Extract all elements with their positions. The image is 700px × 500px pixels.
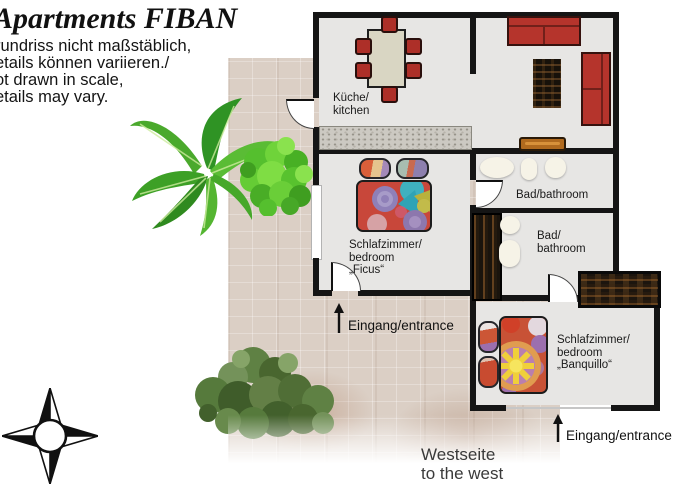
dark-rug bbox=[533, 59, 561, 108]
bath-toilet bbox=[521, 158, 537, 180]
pillow bbox=[396, 158, 429, 179]
window bbox=[311, 185, 322, 260]
wall bbox=[313, 12, 319, 98]
arrow-up-icon bbox=[333, 303, 345, 335]
disclaimer-line-1: rundriss nicht maßstäblich, bbox=[0, 38, 191, 55]
bathroom-top-label: Bad/bathroom bbox=[516, 189, 588, 202]
pillow bbox=[478, 356, 499, 388]
single-bed-banquillo bbox=[499, 316, 548, 394]
bedroom-banquillo-label: Schlafzimmer/ bedroom „Banquillo“ bbox=[557, 334, 630, 372]
wall bbox=[358, 290, 476, 296]
dining-chair bbox=[381, 86, 398, 103]
bath-bidet bbox=[545, 157, 566, 178]
bedroom-ficus-label: Schlafzimmer/ bedroom „Ficus“ bbox=[349, 239, 422, 277]
dining-chair bbox=[405, 62, 422, 79]
sofa-2 bbox=[581, 52, 611, 126]
wall-kitchen-divider bbox=[470, 12, 476, 74]
floor-plan-page: Küche/ kitchen Bad/bathroom Bad/ bathroo… bbox=[0, 0, 700, 500]
disclaimer-line-2: etails können variieren./ bbox=[0, 55, 169, 72]
wall bbox=[470, 296, 476, 411]
pillow bbox=[359, 158, 391, 179]
dining-chair bbox=[405, 38, 422, 55]
double-bed-ficus bbox=[356, 180, 432, 232]
compass-rose-icon bbox=[2, 388, 98, 484]
entrance-threshold bbox=[506, 407, 611, 409]
bath-sink bbox=[500, 216, 520, 234]
bathroom-bottom-label: Bad/ bathroom bbox=[537, 230, 586, 255]
wall bbox=[470, 405, 506, 411]
sofa bbox=[507, 16, 581, 46]
bath-toilet bbox=[499, 240, 520, 267]
pillow bbox=[478, 321, 499, 353]
green-bush bbox=[238, 132, 316, 216]
dining-table bbox=[367, 29, 406, 88]
dining-chair bbox=[381, 16, 398, 33]
wall bbox=[313, 290, 332, 296]
disclaimer-line-4: etails may vary. bbox=[0, 89, 108, 106]
kitchen-counter bbox=[319, 126, 472, 150]
wardrobe bbox=[578, 271, 661, 308]
disclaimer-line-3: ot drawn in scale, bbox=[0, 72, 123, 89]
west-side-label: Westseite to the west bbox=[421, 445, 503, 483]
page-title: Apartments FIBAN bbox=[0, 2, 237, 36]
patio-fade bbox=[228, 415, 560, 470]
wall bbox=[470, 154, 476, 180]
kitchen-label: Küche/ kitchen bbox=[333, 92, 369, 117]
wall bbox=[611, 405, 660, 411]
entrance-1-label: Eingang/entrance bbox=[348, 318, 454, 333]
wall bbox=[613, 12, 619, 274]
tv-board bbox=[519, 137, 566, 151]
dining-chair bbox=[355, 38, 372, 55]
bath-sink bbox=[480, 157, 514, 178]
entrance-2-label: Eingang/entrance bbox=[566, 428, 672, 443]
dining-chair bbox=[355, 62, 372, 79]
arrow-up-icon bbox=[552, 414, 564, 444]
wardrobe bbox=[472, 213, 502, 301]
